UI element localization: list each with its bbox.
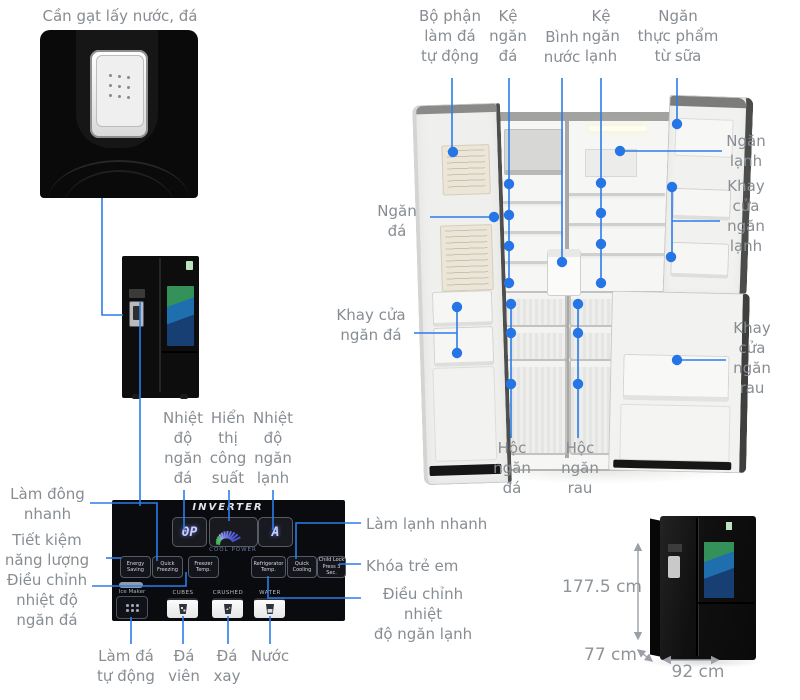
ice-maker-slider <box>119 582 143 588</box>
energy-saving-button: Energy Saving <box>120 556 151 578</box>
freezer-door-top-edge <box>416 104 496 115</box>
sticker-text-lines <box>445 229 489 286</box>
mini-fridge-dispenser <box>129 301 144 327</box>
quick-cooling-button: Quick Cooling <box>287 556 317 578</box>
ice-dots-icon <box>126 604 129 607</box>
mini-fridge-image <box>122 256 199 398</box>
veg-drawer-label: Hộc ngăn rau <box>555 438 605 498</box>
cool-power-gauge <box>209 517 258 547</box>
mini-fridge-control-panel <box>129 289 145 298</box>
refrigerator-temp-button: Refrigerator Temp. <box>251 556 286 578</box>
dimension-fridge-control-panel <box>668 544 682 552</box>
freezer-display-value: 0P <box>182 525 198 540</box>
freezer-temp-button: Freezer Temp. <box>188 556 219 578</box>
mini-fridge-door-split <box>162 351 197 353</box>
dispenser-lever <box>90 50 148 138</box>
dispenser-closeup-image <box>40 30 198 198</box>
child-lock-button: Child Lock Press 3 Sec. <box>317 556 346 578</box>
door-sticker <box>441 144 491 195</box>
freezer-door-bin <box>433 326 494 367</box>
crushed-ice-label: Đá xay <box>207 646 247 686</box>
dimension-fridge-door-gap <box>696 518 698 656</box>
water-label: Nước <box>245 646 295 666</box>
mini-fridge-foot <box>132 394 140 399</box>
dispenser-lever-label: Cần gạt lấy nước, đá <box>30 6 210 26</box>
fridge-shelf-label: Kệ ngăn lạnh <box>576 6 626 66</box>
auto-ice-unit-label: Bộ phận làm đá tự động <box>410 6 490 66</box>
ice-maker-button <box>116 596 148 619</box>
vegetable-door-bottom-bar <box>613 460 731 470</box>
ice-cubes-label: Đá viên <box>164 646 204 686</box>
drawer-rail <box>505 361 565 367</box>
veg-door-tray-label: Khay cửa ngăn rau <box>726 318 778 398</box>
freezer-drawer-label: Hộc ngăn đá <box>487 438 537 498</box>
fridge-compartment-label: Ngăn lạnh <box>720 131 772 171</box>
energy-saving-label: Tiết kiệm năng lượng <box>2 530 92 570</box>
freezer-door-open <box>412 103 512 486</box>
fridge-back-panel <box>585 149 637 177</box>
quick-cooling-label: Làm lạnh nhanh <box>366 514 496 534</box>
dimension-fridge-poster <box>704 542 734 598</box>
crushed-pad-button <box>212 598 243 618</box>
dispenser-lever-face <box>96 55 144 127</box>
inverter-logo: INVERTER <box>178 502 278 513</box>
auto-ice-label: Làm đá tự động <box>88 646 164 686</box>
cool-power-caption: COOL POWER <box>203 547 263 553</box>
dimension-fridge-dispenser <box>668 556 680 578</box>
freezer-compartment-label: Ngăn đá <box>360 201 434 241</box>
dimension-fridge-door-split <box>698 602 754 604</box>
fridge-shelf <box>569 223 665 226</box>
control-panel-image: INVERTER 0P A COOL POWER En <box>112 500 345 621</box>
power-display-label: Hiển thị công suất <box>203 408 253 488</box>
water-caption: WATER <box>247 590 293 596</box>
fridge-display-value: A <box>272 525 280 540</box>
fridge-shelf <box>569 253 665 256</box>
fridge-door-top-edge <box>670 96 746 109</box>
door-sticker <box>440 224 494 292</box>
water-tank <box>547 249 581 296</box>
lever-dots <box>109 84 112 87</box>
width-dimension-label: 92 cm <box>668 662 728 682</box>
fridge-led-light <box>589 126 647 131</box>
lever-dots <box>109 94 112 97</box>
dimension-fridge-energy-label <box>726 522 732 530</box>
freezer-shelf <box>503 231 563 234</box>
cubes-pad-button <box>167 598 198 618</box>
freezer-shelf <box>503 201 563 204</box>
crushed-caption: CRUSHED <box>205 590 251 596</box>
ice-maker-caption: Ice Maker <box>112 589 152 595</box>
crushed-ice-icon <box>223 603 233 615</box>
vegetable-door-lower-panel <box>619 404 730 462</box>
freezer-temp-display-label: Nhiệt độ ngăn đá <box>158 408 208 488</box>
cubes-caption: CUBES <box>160 590 206 596</box>
water-pad-button <box>254 598 285 618</box>
ice-cubes-icon <box>178 603 188 615</box>
freezer-drawer <box>503 325 567 361</box>
mini-fridge-energy-label <box>186 261 193 270</box>
auto-ice-maker-unit <box>504 129 563 175</box>
quick-freezing-button: Quick Freezing <box>152 556 183 578</box>
mini-fridge-door-gap <box>159 258 161 392</box>
height-dimension-label: 177.5 cm <box>562 577 632 597</box>
mini-fridge-foot <box>180 394 188 399</box>
freezer-shelf-label: Kệ ngăn đá <box>483 6 533 66</box>
freezer-door-bin <box>432 290 493 327</box>
fridge-shelf <box>569 193 665 196</box>
fridge-temp-adjust-label: Điều chỉnh nhiệt độ ngăn lạnh <box>366 584 480 644</box>
depth-dimension-label: 77 cm <box>584 645 634 665</box>
quick-freeze-label: Làm đông nhanh <box>5 484 90 524</box>
freezer-drawer <box>503 291 567 327</box>
water-glass-icon <box>265 603 275 615</box>
dimension-fridge-image <box>650 516 760 666</box>
sticker-text-lines <box>446 149 485 190</box>
freezer-temp-adjust-label: Điều chỉnh nhiệt độ ngăn đá <box>2 570 92 630</box>
mini-fridge-dispenser-recess <box>133 306 140 320</box>
fridge-temp-display-label: Nhiệt độ ngăn lạnh <box>248 408 298 488</box>
dimension-fridge-front-face <box>660 516 756 660</box>
mini-fridge-poster <box>167 286 194 346</box>
fridge-temp-display: A <box>258 517 293 547</box>
cool-power-fan-icon <box>211 519 256 545</box>
dairy-compartment-label: Ngăn thực phẩm từ sữa <box>628 6 728 66</box>
freezer-temp-display: 0P <box>172 517 207 547</box>
child-lock-label: Khóa trẻ em <box>366 556 476 576</box>
fridge-door-tray-label: Khay cửa ngăn lạnh <box>720 176 772 256</box>
lever-dots <box>109 74 112 77</box>
freezer-door-tray-label: Khay cửa ngăn đá <box>330 305 412 345</box>
infographic-canvas: Cần gạt lấy nước, đá <box>0 0 800 700</box>
drawer-rail <box>505 327 565 333</box>
vegetable-door-tray <box>623 354 730 402</box>
